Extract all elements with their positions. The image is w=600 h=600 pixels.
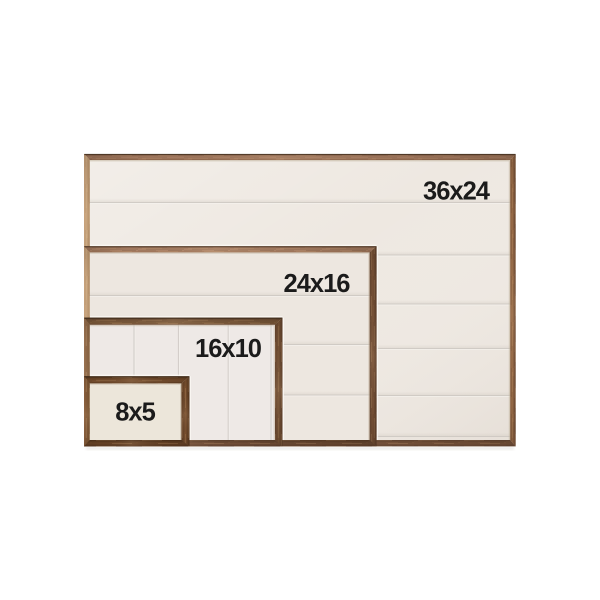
svg-text:8x5: 8x5	[115, 399, 155, 427]
svg-text:16x10: 16x10	[195, 335, 262, 363]
svg-text:24x16: 24x16	[284, 270, 351, 298]
svg-text:36x24: 36x24	[423, 178, 491, 206]
